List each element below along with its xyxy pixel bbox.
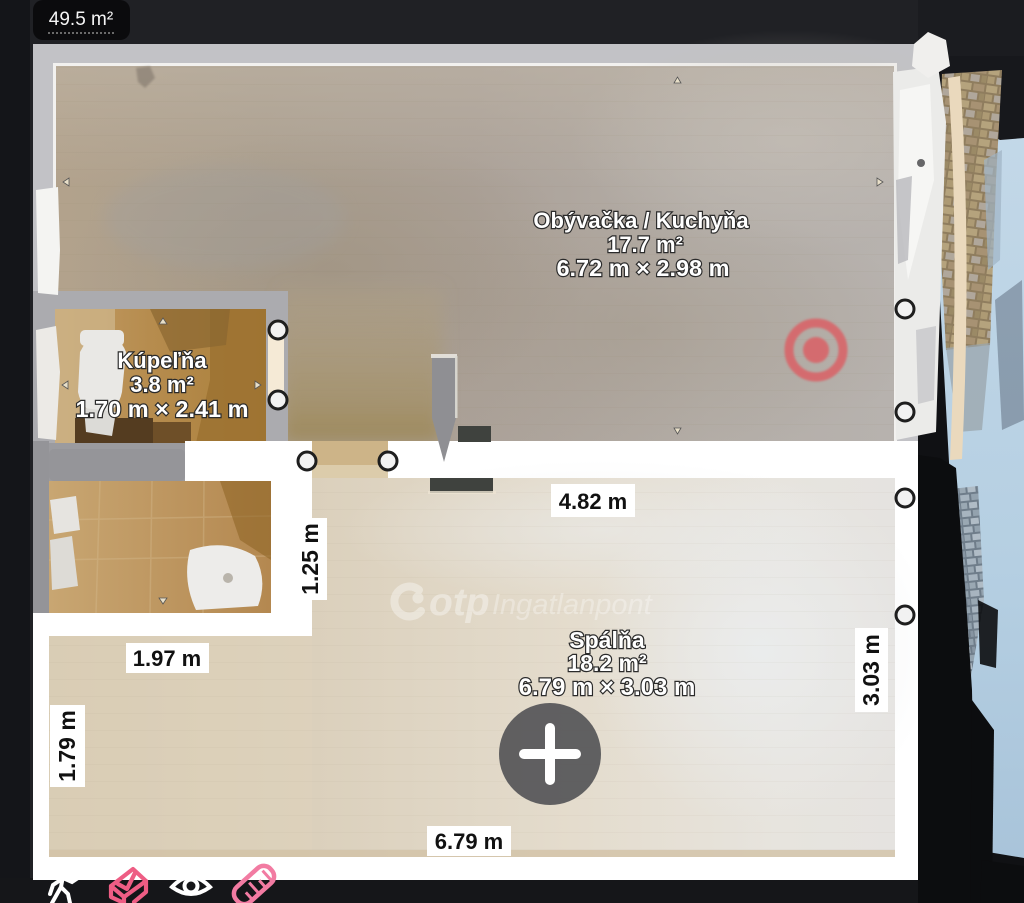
svg-text:1.79 m: 1.79 m xyxy=(54,710,80,782)
svg-text:18.2 m²: 18.2 m² xyxy=(567,650,647,676)
svg-text:1.70 m × 2.41 m: 1.70 m × 2.41 m xyxy=(75,396,248,422)
svg-text:1.97 m: 1.97 m xyxy=(133,646,202,671)
svg-text:4.82 m: 4.82 m xyxy=(559,489,628,514)
svg-text:Kúpeľňa: Kúpeľňa xyxy=(117,348,207,373)
svg-text:otp: otp xyxy=(429,581,490,624)
svg-text:3.8 m²: 3.8 m² xyxy=(130,372,194,397)
svg-text:6.72 m × 2.98 m: 6.72 m × 2.98 m xyxy=(556,255,729,281)
svg-text:17.7 m²: 17.7 m² xyxy=(607,232,683,257)
svg-text:49.5 m²: 49.5 m² xyxy=(49,9,113,30)
svg-text:3.03 m: 3.03 m xyxy=(858,634,884,706)
svg-text:Obývačka / Kuchyňa: Obývačka / Kuchyňa xyxy=(533,208,749,233)
svg-text:1.25 m: 1.25 m xyxy=(297,523,323,595)
svg-text:6.79 m: 6.79 m xyxy=(435,829,504,854)
svg-text:Ingatlanpont: Ingatlanpont xyxy=(492,589,654,621)
svg-text:6.79 m × 3.03 m: 6.79 m × 3.03 m xyxy=(519,674,696,701)
